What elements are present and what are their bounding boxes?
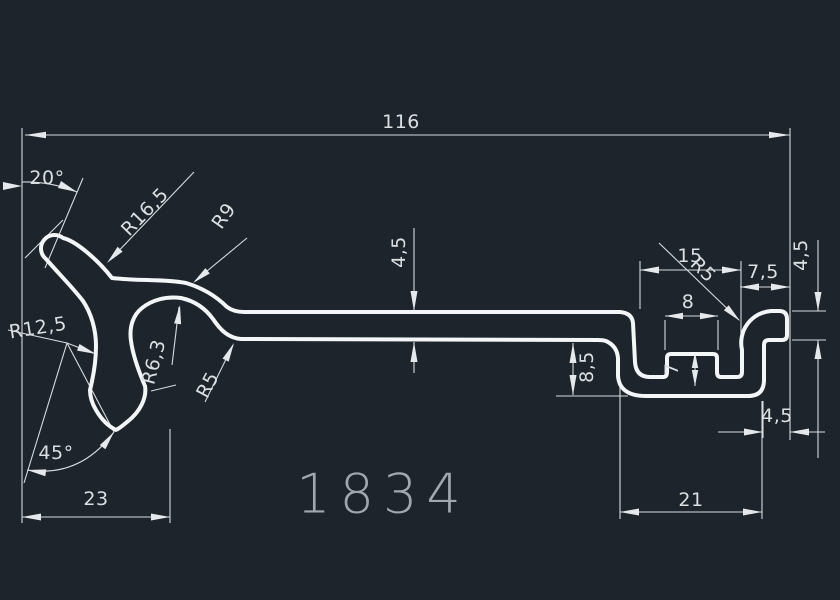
- arrow-r125: [77, 344, 96, 354]
- dim-label-21: 21: [678, 489, 703, 511]
- arrow-21-right: [743, 509, 762, 516]
- arrow-45mid-bot: [411, 342, 418, 362]
- arrow-23-right: [151, 514, 170, 521]
- arrow-23-left: [22, 514, 41, 521]
- cad-drawing-canvas[interactable]: 116 20° R16,5 R9 R12,5 R6,3 R5 4,5 8,5 1…: [0, 0, 840, 600]
- part-number-label: 1834: [296, 463, 469, 526]
- dim-label-116: 116: [382, 111, 420, 133]
- arrow-15-left: [640, 267, 659, 274]
- arrow-45br-left: [744, 429, 763, 436]
- arrow-116-left: [25, 132, 46, 139]
- dim-label-45-mid: 4,5: [388, 236, 410, 268]
- arrow-75-right: [771, 284, 790, 291]
- dim-label-r165: R16,5: [117, 183, 173, 240]
- arrow-8-right: [700, 313, 718, 319]
- dim-label-20deg: 20°: [29, 167, 64, 189]
- dim-label-45deg: 45°: [38, 442, 73, 464]
- dim-label-75: 7,5: [747, 261, 779, 283]
- arrow-45deg-left: [27, 469, 46, 476]
- arrow-116-right: [769, 132, 790, 139]
- dim-label-r9: R9: [207, 199, 240, 233]
- arrow-45tr-bot: [815, 340, 822, 359]
- arrow-75-left: [740, 284, 759, 291]
- dim-label-r63: R6,3: [137, 337, 170, 387]
- arrow-20-left: [3, 182, 22, 190]
- dim-label-45-topright: 4,5: [790, 239, 812, 271]
- dim-label-45-botright: 4,5: [761, 405, 793, 427]
- dim-label-r125: R12,5: [8, 313, 69, 344]
- dim-label-85: 8,5: [576, 351, 598, 383]
- arrow-7-bot: [692, 370, 698, 386]
- arrow-8-left: [665, 313, 683, 319]
- dim-label-8: 8: [682, 291, 695, 313]
- arrow-45tr-top: [815, 292, 822, 311]
- arrow-15-right: [722, 267, 741, 274]
- angle-20-ray: [45, 178, 83, 268]
- arrow-r5-left: [223, 343, 235, 362]
- dim-label-7: 7: [661, 363, 683, 376]
- arrow-21-left: [620, 509, 639, 516]
- arrow-45mid-top: [411, 291, 418, 311]
- profile-drawing-svg: 116 20° R16,5 R9 R12,5 R6,3 R5 4,5 8,5 1…: [0, 0, 840, 600]
- arrow-45br-right: [790, 429, 809, 436]
- arrow-r63: [174, 305, 181, 324]
- dim-label-23: 23: [83, 488, 108, 510]
